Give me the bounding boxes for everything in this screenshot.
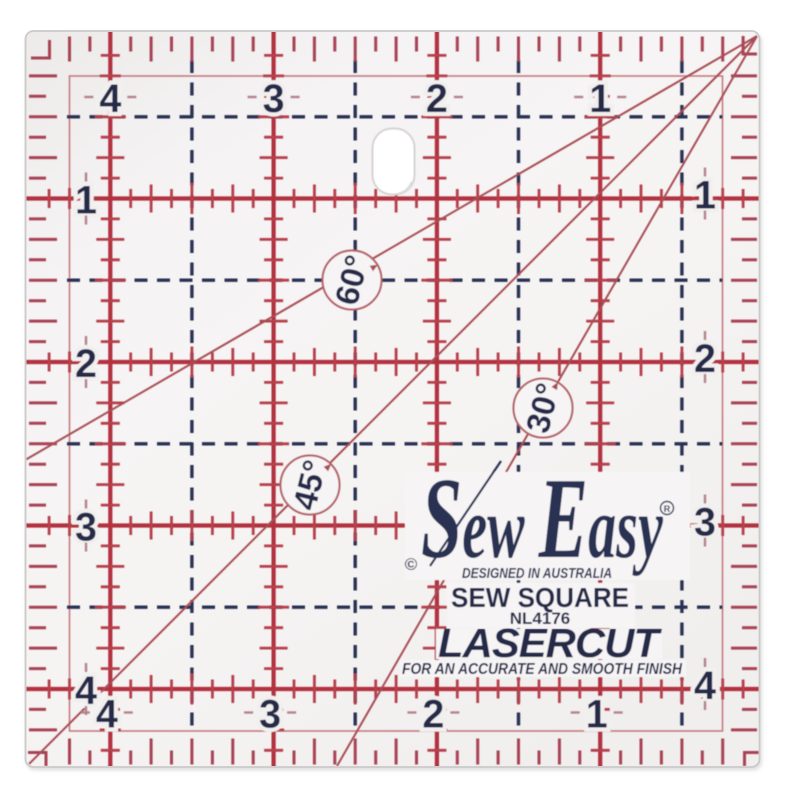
svg-text:R: R xyxy=(664,504,671,514)
svg-text:2: 2 xyxy=(422,693,444,737)
svg-text:©: © xyxy=(405,555,418,574)
svg-text:3: 3 xyxy=(263,77,285,121)
svg-text:FOR AN ACCURATE AND SMOOTH FIN: FOR AN ACCURATE AND SMOOTH FINISH xyxy=(402,661,682,678)
svg-text:2: 2 xyxy=(426,77,448,121)
svg-text:4: 4 xyxy=(99,77,121,121)
svg-text:3: 3 xyxy=(259,693,281,737)
svg-text:DESIGNED IN AUSTRALIA: DESIGNED IN AUSTRALIA xyxy=(462,566,612,582)
svg-text:1: 1 xyxy=(589,77,611,121)
svg-text:1: 1 xyxy=(586,693,608,737)
svg-text:LASERCUT: LASERCUT xyxy=(438,620,662,666)
svg-text:4: 4 xyxy=(96,693,118,737)
